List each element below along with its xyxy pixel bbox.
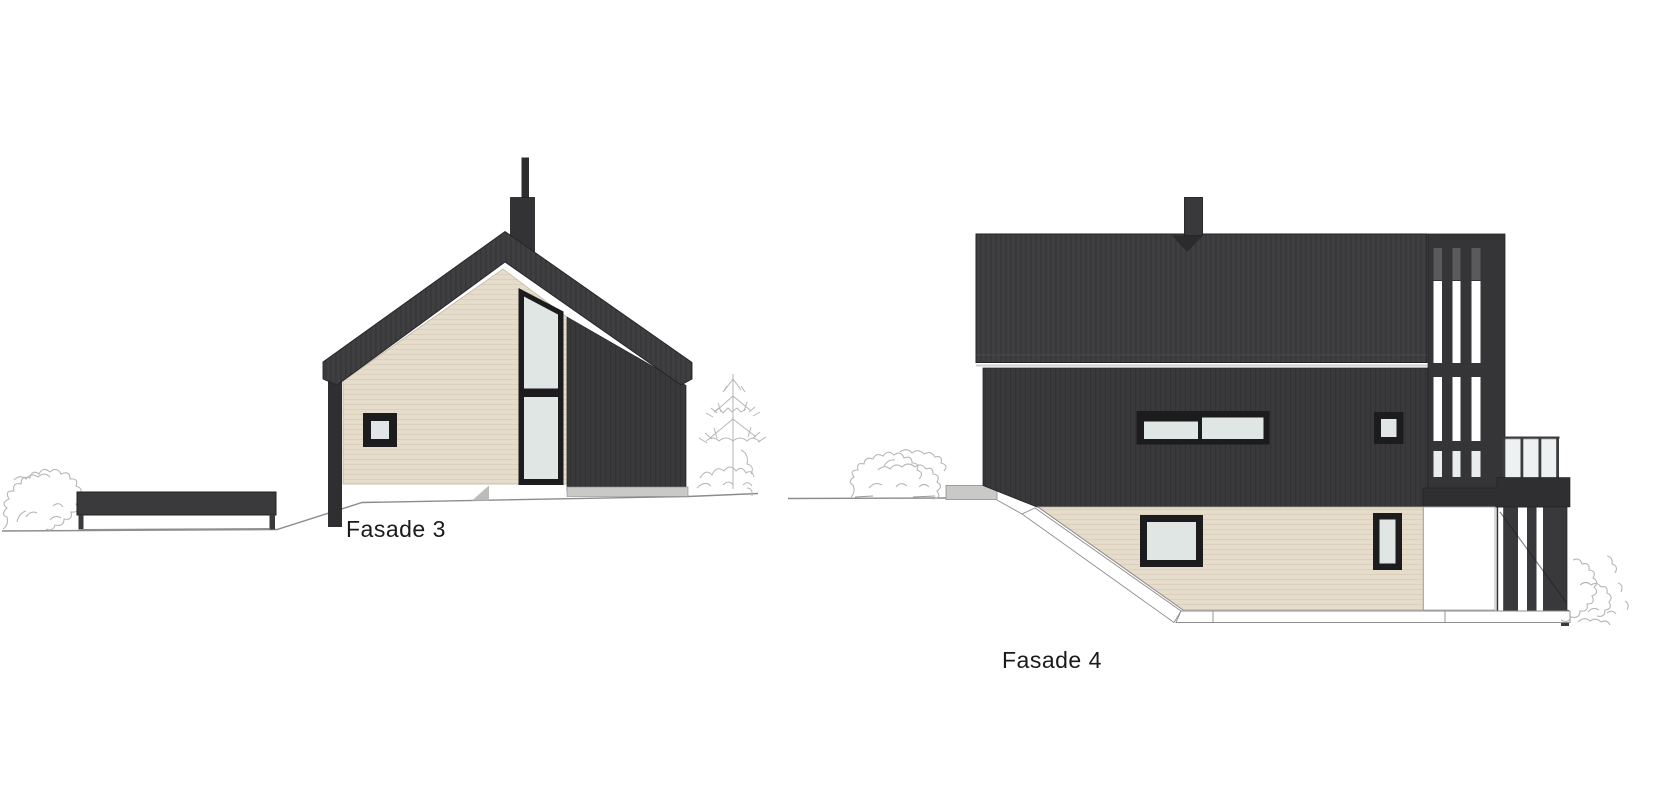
fasade4-basement-narrow-window xyxy=(1373,513,1402,570)
fasade3-plinth-shade xyxy=(472,486,489,501)
fasade-3-drawing: Fasade 3 xyxy=(2,158,766,543)
fasade4-ribbon-window-glass-right xyxy=(1202,418,1264,440)
fasade3-terrace-edge xyxy=(567,487,688,497)
fasade4-slat-gaps-low xyxy=(1434,451,1481,477)
fasade4-ribbon-window xyxy=(1137,411,1270,445)
fasade3-small-window-glass xyxy=(371,421,389,439)
elevation-drawings: Fasade 3 xyxy=(0,0,1670,800)
fasade3-carport-post-right xyxy=(270,515,276,530)
fasade-4-drawing: Fasade 4 xyxy=(788,198,1628,674)
fasade4-ribbon-window-glass-left xyxy=(1144,422,1198,440)
fasade4-garage-panel xyxy=(1424,507,1496,610)
fasade4-square-window-glass xyxy=(1381,419,1397,437)
fasade3-fir-tree-sketch xyxy=(697,374,766,496)
fasade4-roof-slab xyxy=(976,234,1427,363)
fasade4-shrub-sketch-left xyxy=(850,450,946,499)
fasade4-basement-window xyxy=(1140,515,1203,567)
fasade3-corner-board xyxy=(328,362,342,527)
fasade4-slat-gaps-top xyxy=(1434,281,1481,363)
fasade4-lower-slats xyxy=(1497,507,1569,626)
fasade4-slat-gaps-mid xyxy=(1434,377,1481,441)
fasade4-slat-stubs xyxy=(1434,248,1481,280)
fasade4-base-strip xyxy=(1176,611,1570,623)
fasade4-narrow-window-glass xyxy=(1380,520,1396,564)
fasade4-label: Fasade 4 xyxy=(1002,647,1102,673)
fasade4-ground-line-left xyxy=(788,498,947,499)
fasade3-carport-post-left xyxy=(79,515,84,530)
fasade3-carport-wall xyxy=(77,492,276,530)
fasade4-roof xyxy=(976,198,1427,366)
fasade3-small-window xyxy=(363,413,397,447)
fasade4-railing-glass xyxy=(1503,439,1559,478)
architectural-elevation-sheet: Fasade 3 xyxy=(0,0,1670,800)
fasade3-shrub-sketch xyxy=(3,469,81,529)
fasade4-basement-window-glass xyxy=(1147,522,1196,560)
fasade3-chimney-flue xyxy=(522,158,530,204)
fasade4-chimney xyxy=(1185,198,1203,236)
fasade3-house xyxy=(323,158,692,528)
fasade4-foundation-lead-line xyxy=(997,500,1022,514)
fasade4-shrub-sketch-right xyxy=(1561,556,1628,625)
fasade3-tall-window-glass-lower xyxy=(524,397,558,479)
fasade3-label: Fasade 3 xyxy=(346,516,446,542)
fasade4-square-window-upper xyxy=(1374,412,1404,444)
fasade3-tall-window xyxy=(519,288,564,485)
fasade3-carport-band xyxy=(77,492,276,515)
fasade4-ground-marks xyxy=(855,496,935,497)
fasade4-slat-screen xyxy=(1428,234,1505,507)
